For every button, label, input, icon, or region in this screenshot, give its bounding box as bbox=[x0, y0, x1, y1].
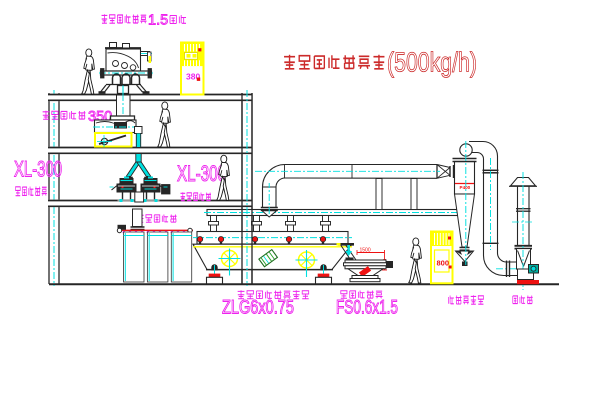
svg-text:ZLG6x0.75: ZLG6x0.75 bbox=[222, 298, 294, 319]
svg-text:XL-300: XL-300 bbox=[14, 157, 62, 182]
svg-text:(500kg/h): (500kg/h) bbox=[387, 47, 477, 78]
svg-text:P400: P400 bbox=[460, 185, 471, 190]
svg-text:1500: 1500 bbox=[360, 248, 371, 254]
svg-text:1.5: 1.5 bbox=[148, 13, 168, 29]
svg-text:FS0.6x1.5: FS0.6x1.5 bbox=[336, 298, 398, 319]
svg-text:800: 800 bbox=[437, 259, 450, 268]
